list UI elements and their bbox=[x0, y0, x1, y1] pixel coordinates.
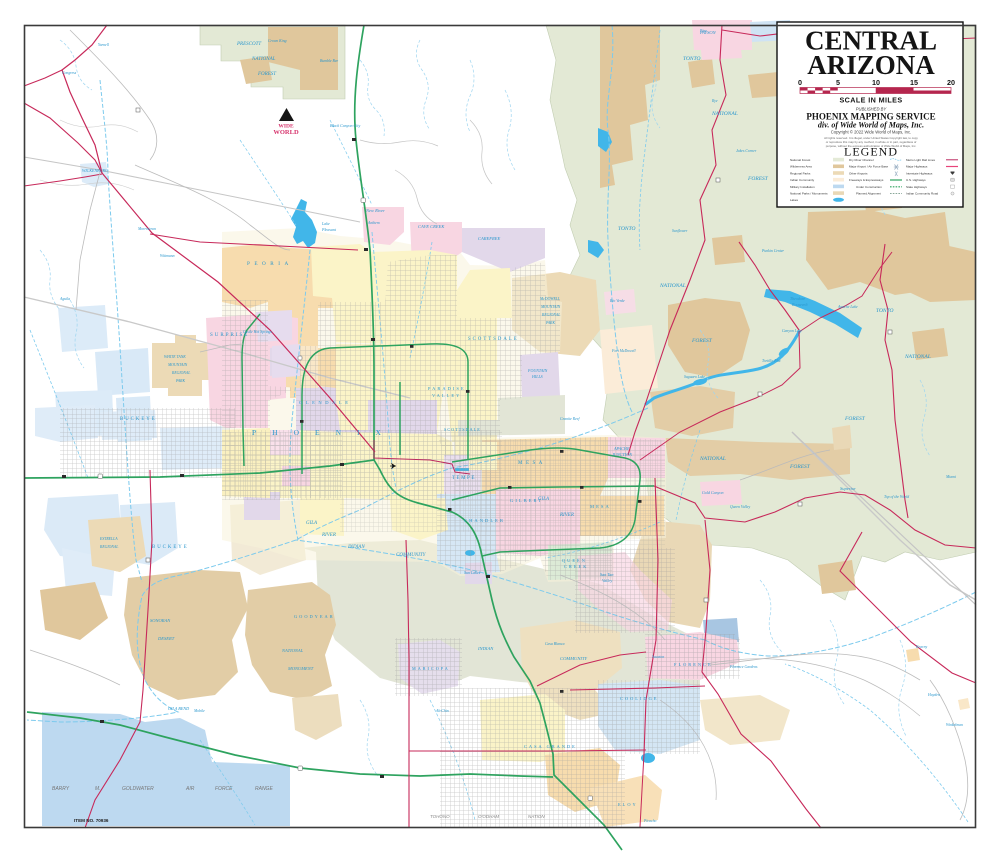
svg-text:NATIONAL: NATIONAL bbox=[281, 648, 304, 653]
svg-text:Crown King: Crown King bbox=[268, 39, 287, 43]
svg-text:Saguaro Lake: Saguaro Lake bbox=[684, 375, 705, 379]
svg-text:PHOENIX: PHOENIX bbox=[252, 428, 397, 437]
svg-text:FOREST: FOREST bbox=[257, 72, 277, 77]
svg-text:Tortilla Flat: Tortilla Flat bbox=[762, 359, 781, 363]
svg-text:Punkin Center: Punkin Center bbox=[761, 249, 785, 253]
svg-text:Ak-Chin: Ak-Chin bbox=[435, 709, 449, 713]
svg-text:Military Installation: Military Installation bbox=[790, 185, 815, 189]
svg-text:Sacaton: Sacaton bbox=[652, 655, 664, 659]
svg-text:PARK: PARK bbox=[175, 379, 185, 383]
svg-text:REGIONAL: REGIONAL bbox=[541, 313, 560, 317]
svg-text:Indian Community Road: Indian Community Road bbox=[906, 192, 939, 196]
svg-text:NATION: NATION bbox=[528, 814, 545, 819]
svg-text:Apache Lake: Apache Lake bbox=[837, 305, 858, 309]
svg-text:Lake: Lake bbox=[321, 221, 330, 226]
svg-text:U.S. Highways: U.S. Highways bbox=[906, 178, 926, 182]
svg-text:Florence Gardens: Florence Gardens bbox=[729, 665, 758, 669]
svg-text:PEORIA: PEORIA bbox=[247, 261, 293, 267]
svg-text:Other Airports: Other Airports bbox=[849, 171, 868, 175]
svg-text:Winkelman: Winkelman bbox=[946, 723, 963, 727]
svg-text:INDIAN: INDIAN bbox=[347, 545, 365, 550]
svg-text:Hayden: Hayden bbox=[927, 693, 940, 697]
svg-text:GILA: GILA bbox=[538, 497, 550, 502]
svg-text:Top of the World: Top of the World bbox=[884, 495, 909, 499]
svg-text:Rio Verde: Rio Verde bbox=[609, 299, 625, 303]
svg-text:Kearny: Kearny bbox=[915, 645, 927, 649]
svg-text:GILA BEND: GILA BEND bbox=[168, 706, 189, 711]
svg-text:MESA: MESA bbox=[590, 504, 611, 509]
svg-text:COOLIDGE: COOLIDGE bbox=[620, 696, 658, 701]
svg-text:div. of Wide World of Maps, In: div. of Wide World of Maps, Inc. bbox=[818, 121, 924, 130]
svg-text:20: 20 bbox=[947, 78, 955, 87]
svg-text:Morristown: Morristown bbox=[137, 227, 156, 231]
svg-text:National Forest: National Forest bbox=[790, 158, 811, 162]
svg-text:COMMUNITY: COMMUNITY bbox=[560, 656, 588, 661]
svg-text:PARADISE: PARADISE bbox=[428, 386, 466, 391]
svg-text:Regional Parks: Regional Parks bbox=[790, 171, 811, 175]
svg-text:WICKENBURG: WICKENBURG bbox=[82, 168, 108, 173]
svg-text:Rye: Rye bbox=[711, 99, 718, 103]
svg-text:INDIAN: INDIAN bbox=[477, 646, 494, 651]
svg-text:Gold Canyon: Gold Canyon bbox=[702, 490, 723, 495]
svg-text:ITEM NO. 70936: ITEM NO. 70936 bbox=[74, 818, 109, 823]
svg-text:National Parks / Monuments: National Parks / Monuments bbox=[790, 192, 828, 196]
svg-text:Interstate Highways: Interstate Highways bbox=[906, 171, 933, 175]
svg-text:SCOTTSDALE: SCOTTSDALE bbox=[468, 337, 519, 342]
svg-text:FORCE: FORCE bbox=[215, 786, 233, 792]
svg-text:TONTO: TONTO bbox=[876, 308, 894, 314]
svg-text:Jakes Corner: Jakes Corner bbox=[736, 149, 757, 153]
svg-text:San Tan: San Tan bbox=[600, 572, 613, 577]
svg-text:Black Canyon City: Black Canyon City bbox=[330, 123, 360, 128]
svg-text:Casa Blanca: Casa Blanca bbox=[545, 642, 565, 646]
svg-text:GOLDWATER: GOLDWATER bbox=[122, 786, 154, 792]
svg-text:FOUNTAIN: FOUNTAIN bbox=[527, 368, 548, 373]
svg-text:Major Highways: Major Highways bbox=[906, 165, 928, 169]
svg-text:Indian Community: Indian Community bbox=[790, 178, 815, 182]
svg-text:10: 10 bbox=[872, 78, 880, 87]
svg-text:MOUNTAIN: MOUNTAIN bbox=[540, 305, 561, 309]
svg-text:Major Airport / Air Force Base: Major Airport / Air Force Base bbox=[849, 165, 889, 169]
svg-text:NATIONAL: NATIONAL bbox=[699, 456, 726, 462]
svg-text:FLORENCE: FLORENCE bbox=[674, 662, 713, 667]
svg-text:CHANDLER: CHANDLER bbox=[464, 518, 505, 523]
svg-text:State Highways: State Highways bbox=[906, 185, 927, 189]
svg-text:New River: New River bbox=[365, 208, 385, 213]
svg-text:SCALE IN MILES: SCALE IN MILES bbox=[839, 96, 902, 105]
svg-text:TEMPE: TEMPE bbox=[452, 476, 476, 481]
svg-text:FOREST: FOREST bbox=[747, 176, 769, 182]
svg-text:Castle Hot Springs: Castle Hot Springs bbox=[243, 330, 272, 334]
svg-text:5: 5 bbox=[836, 78, 840, 87]
svg-text:MOUNTAIN: MOUNTAIN bbox=[167, 363, 188, 367]
svg-text:Wittmann: Wittmann bbox=[160, 254, 175, 258]
svg-text:TONTO: TONTO bbox=[618, 226, 636, 232]
svg-text:FOREST: FOREST bbox=[844, 416, 866, 422]
svg-text:M.: M. bbox=[95, 786, 101, 792]
svg-text:Mobile: Mobile bbox=[193, 709, 205, 713]
svg-text:GLENDALE: GLENDALE bbox=[299, 400, 352, 405]
svg-text:WHITE TANK: WHITE TANK bbox=[164, 355, 186, 359]
svg-text:CAVE CREEK: CAVE CREEK bbox=[418, 224, 445, 229]
svg-text:Theodore: Theodore bbox=[790, 296, 805, 301]
svg-text:TONTO: TONTO bbox=[683, 56, 701, 62]
svg-text:VALLEY: VALLEY bbox=[432, 393, 461, 398]
svg-text:ELOY: ELOY bbox=[618, 802, 638, 807]
svg-text:SCOTTSDALE: SCOTTSDALE bbox=[444, 427, 481, 432]
svg-text:Picacho: Picacho bbox=[643, 819, 657, 823]
svg-text:AIR: AIR bbox=[185, 786, 195, 792]
svg-text:Lakes: Lakes bbox=[790, 198, 799, 202]
svg-text:Pine: Pine bbox=[699, 29, 707, 33]
svg-text:NATIONAL: NATIONAL bbox=[711, 111, 738, 117]
svg-text:GOODYEAR: GOODYEAR bbox=[294, 614, 335, 619]
svg-text:LEGEND: LEGEND bbox=[844, 145, 898, 159]
svg-text:Fort McDowell: Fort McDowell bbox=[611, 349, 636, 353]
svg-text:CREEK: CREEK bbox=[564, 564, 588, 569]
svg-text:MARICOPA: MARICOPA bbox=[412, 666, 450, 671]
svg-text:REGIONAL: REGIONAL bbox=[99, 545, 118, 549]
svg-text:MONUMENT: MONUMENT bbox=[287, 666, 314, 671]
svg-text:Canyon Lake: Canyon Lake bbox=[782, 329, 802, 333]
svg-text:CASA GRANDE: CASA GRANDE bbox=[524, 744, 577, 749]
svg-text:Under Construction: Under Construction bbox=[856, 185, 882, 189]
svg-text:Superior: Superior bbox=[840, 486, 856, 491]
svg-text:RANGE: RANGE bbox=[255, 786, 273, 792]
svg-text:TOHONO: TOHONO bbox=[430, 814, 450, 819]
svg-text:Freeways & Expressways: Freeways & Expressways bbox=[849, 178, 884, 182]
svg-text:Yarnell: Yarnell bbox=[98, 43, 109, 47]
svg-text:15: 15 bbox=[910, 78, 918, 87]
svg-text:APACHE: APACHE bbox=[613, 446, 630, 451]
svg-text:SONORAN: SONORAN bbox=[150, 618, 171, 623]
svg-text:COMMUNITY: COMMUNITY bbox=[396, 553, 427, 558]
svg-text:Sunflower: Sunflower bbox=[672, 229, 688, 233]
svg-text:FOREST: FOREST bbox=[691, 338, 713, 344]
svg-text:Aguila: Aguila bbox=[59, 297, 70, 301]
svg-text:Planned Alignment: Planned Alignment bbox=[856, 192, 881, 196]
svg-text:Copyright © 2022 Wide World o: Copyright © 2022 Wide World of Maps, Inc… bbox=[831, 130, 912, 135]
svg-text:MESA: MESA bbox=[518, 461, 546, 466]
svg-text:ARIZONA: ARIZONA bbox=[807, 50, 935, 80]
svg-text:Dry River Channel: Dry River Channel bbox=[849, 158, 874, 162]
svg-text:Miami: Miami bbox=[945, 475, 956, 479]
svg-text:GILA: GILA bbox=[306, 521, 318, 526]
svg-text:WORLD: WORLD bbox=[273, 129, 299, 136]
svg-text:Sun Lakes: Sun Lakes bbox=[464, 570, 481, 575]
svg-text:RIVER: RIVER bbox=[559, 513, 574, 518]
svg-text:O'ODHAM: O'ODHAM bbox=[478, 814, 499, 819]
svg-text:McDOWELL: McDOWELL bbox=[539, 297, 560, 301]
svg-text:NATIONAL: NATIONAL bbox=[251, 57, 276, 62]
svg-text:Valley: Valley bbox=[602, 578, 612, 583]
svg-text:Anthem: Anthem bbox=[367, 221, 380, 225]
svg-text:PRESCOTT: PRESCOTT bbox=[236, 42, 262, 47]
svg-text:HILLS: HILLS bbox=[531, 374, 543, 379]
svg-text:Congress: Congress bbox=[62, 71, 77, 75]
svg-text:Pleasant: Pleasant bbox=[321, 227, 337, 232]
svg-text:Granite Reef: Granite Reef bbox=[560, 417, 580, 421]
svg-text:Wilderness Area: Wilderness Area bbox=[790, 165, 812, 169]
svg-text:DESERT: DESERT bbox=[157, 636, 175, 641]
svg-text:BUCKEYE: BUCKEYE bbox=[120, 417, 157, 422]
svg-text:NATIONAL: NATIONAL bbox=[904, 354, 931, 360]
svg-text:Roosevelt: Roosevelt bbox=[791, 302, 808, 307]
svg-text:PARK: PARK bbox=[545, 321, 555, 325]
svg-text:Metro Light Rail Lines: Metro Light Rail Lines bbox=[906, 158, 936, 162]
svg-text:QUEEN: QUEEN bbox=[562, 558, 587, 563]
svg-text:ESTRELLA: ESTRELLA bbox=[99, 537, 118, 541]
svg-text:Bumble Bee: Bumble Bee bbox=[320, 59, 339, 63]
svg-text:REGIONAL: REGIONAL bbox=[171, 371, 190, 375]
svg-text:RIVER: RIVER bbox=[321, 533, 336, 538]
svg-text:CAREFREE: CAREFREE bbox=[478, 236, 500, 241]
svg-text:Queen Valley: Queen Valley bbox=[730, 505, 750, 509]
svg-text:FOREST: FOREST bbox=[789, 464, 811, 470]
svg-text:0: 0 bbox=[798, 78, 802, 87]
svg-text:BARRY: BARRY bbox=[52, 786, 70, 792]
svg-text:BUCKEYE: BUCKEYE bbox=[152, 545, 189, 550]
svg-text:NATIONAL: NATIONAL bbox=[659, 283, 686, 289]
svg-text:JUNCTION: JUNCTION bbox=[612, 452, 632, 457]
